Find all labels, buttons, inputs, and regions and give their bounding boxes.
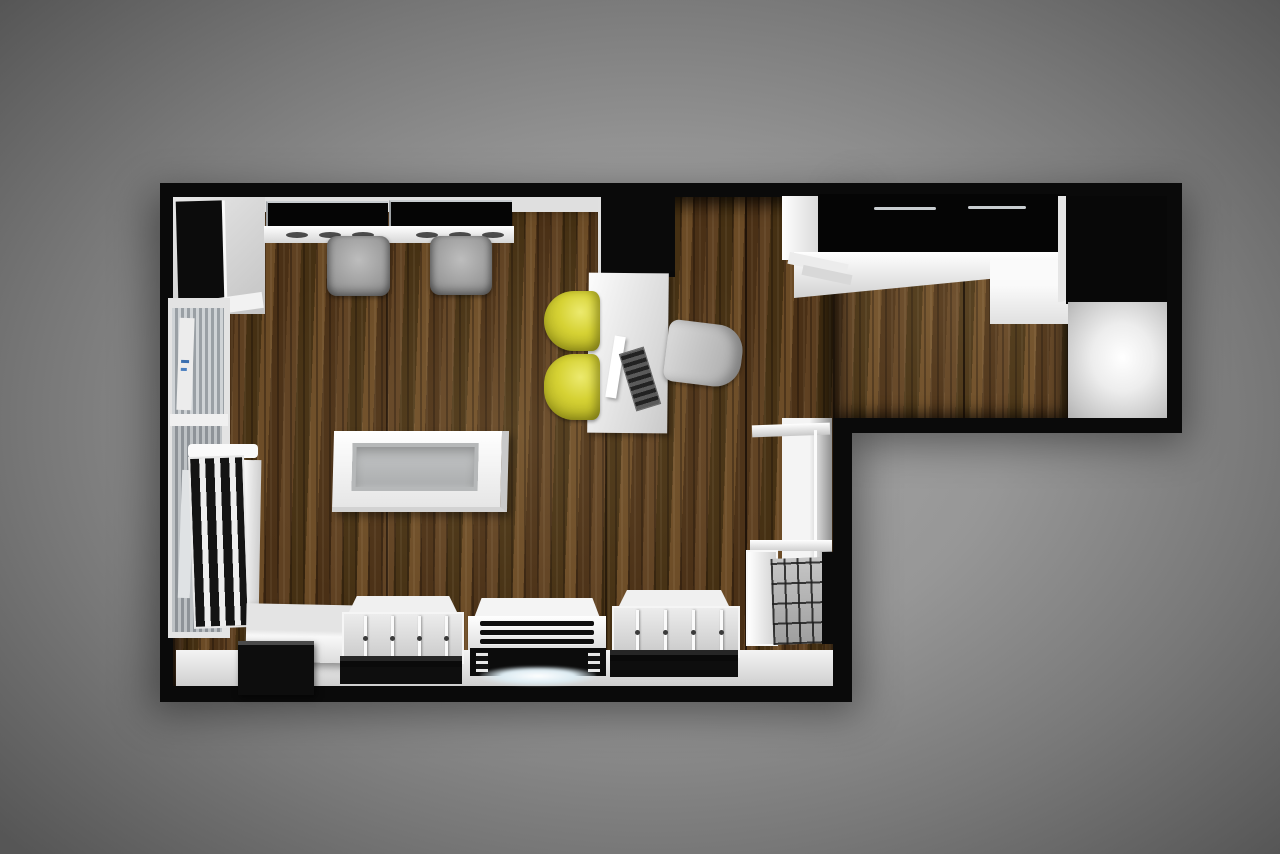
desk-wall-cabinet (598, 197, 675, 277)
case-glow-strip (480, 666, 596, 686)
station-knob (286, 232, 308, 238)
wall-right-main (833, 418, 852, 688)
grid-rack-shadow (822, 552, 834, 644)
center-display-case (468, 616, 606, 650)
station-stool (430, 236, 492, 295)
counter-reflection (968, 206, 1026, 209)
yellow-chair (544, 354, 600, 420)
wall-extension-bottom (833, 418, 1182, 433)
slat-rack (188, 455, 250, 629)
cube-table (238, 641, 314, 695)
tray-divider (664, 610, 667, 654)
tray-divider (692, 610, 695, 654)
poster (176, 318, 194, 410)
illuminated-panel (1068, 302, 1167, 418)
station-stool (327, 236, 390, 296)
tray-base (610, 650, 738, 677)
extension-black-wall (1066, 196, 1167, 304)
tray-divider (391, 616, 394, 660)
tray-divider (364, 616, 367, 660)
corner-cabinet (176, 200, 225, 299)
tray-divider (636, 610, 639, 654)
case-back-panel (474, 598, 600, 618)
station-counter-right (389, 200, 512, 229)
case-slat (480, 621, 594, 626)
tray-divider (445, 616, 448, 660)
case-slat (480, 639, 594, 644)
display-shelf-divider (170, 414, 228, 426)
counter-reflection (874, 207, 936, 210)
scene (0, 0, 1280, 854)
island-glass-top (351, 443, 478, 491)
case-slat (480, 630, 594, 635)
alcove-wall-panel (782, 418, 832, 560)
wall-extension-right (1167, 183, 1182, 433)
grid-rack (771, 557, 828, 645)
island-display (332, 431, 509, 512)
tray-base (340, 656, 462, 684)
reception-counter-top (818, 194, 1066, 258)
poster-blue-mark (181, 360, 189, 363)
counter-end-cap (782, 196, 822, 260)
yellow-chair (544, 291, 600, 351)
counter-return-block (990, 260, 1068, 324)
tray-divider (720, 610, 723, 654)
tray-divider (418, 616, 421, 660)
poster-blue-mark (181, 368, 187, 371)
